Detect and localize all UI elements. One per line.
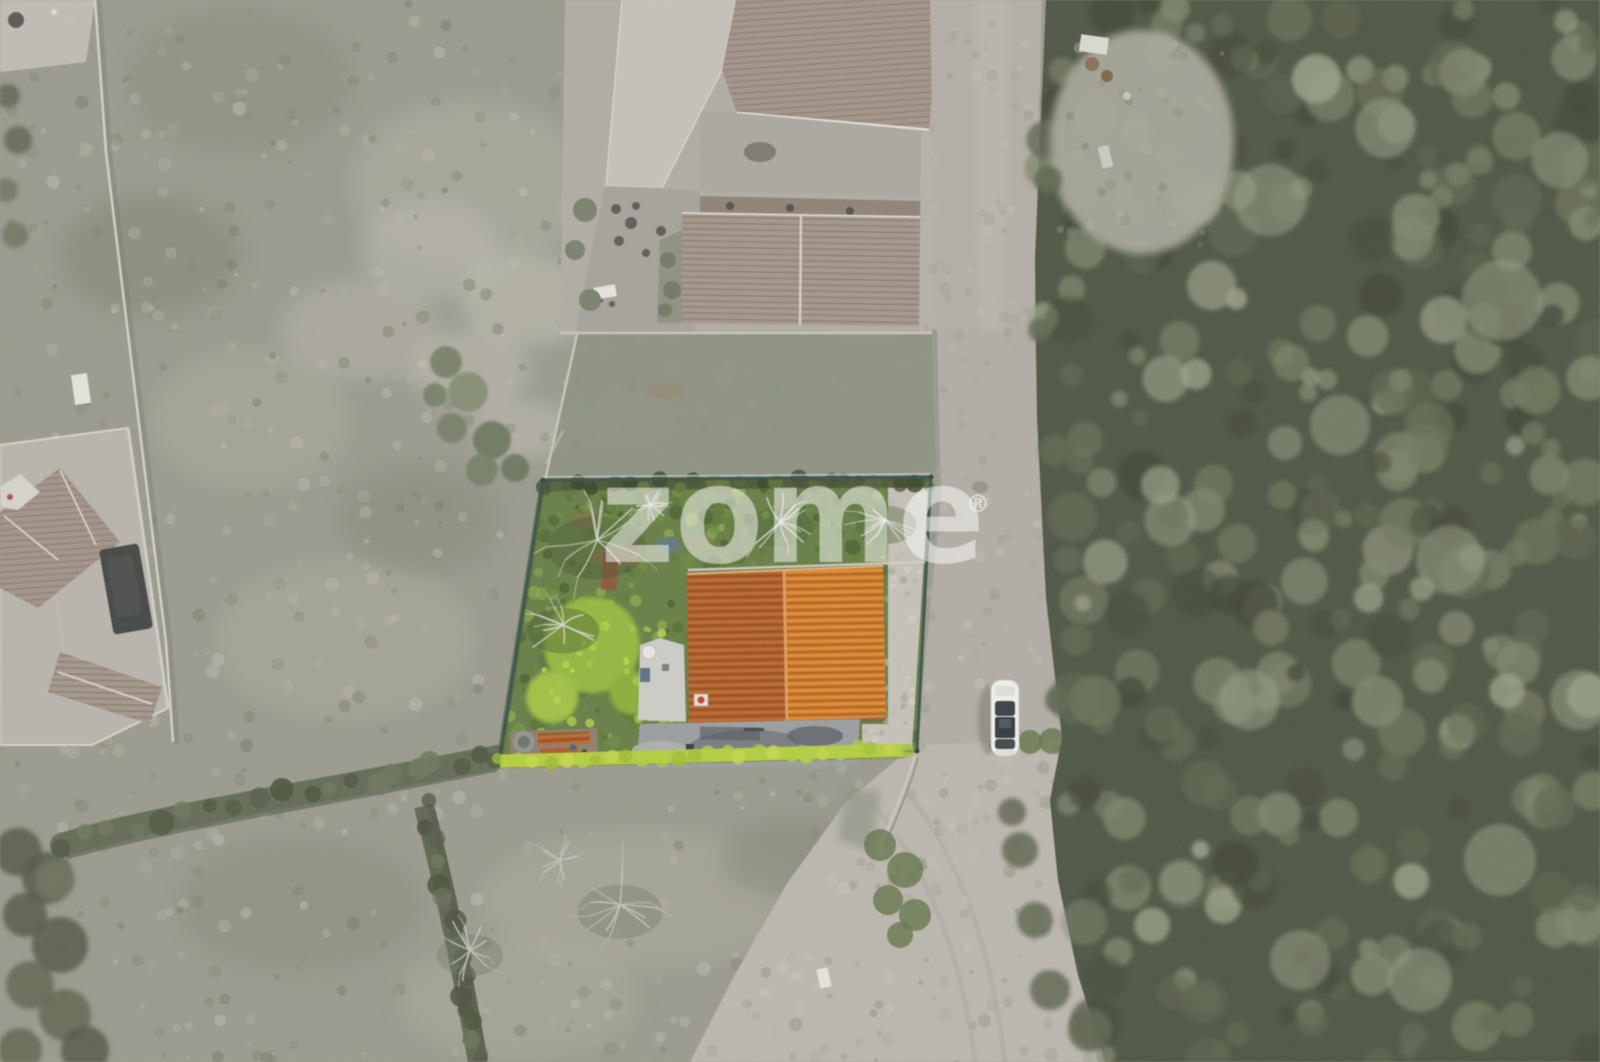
registered-trademark-icon: ® (966, 490, 990, 518)
watermark: zome ® (600, 437, 990, 595)
aerial-photo: zome ® (0, 0, 1600, 1062)
watermark-text: zome (600, 437, 985, 595)
